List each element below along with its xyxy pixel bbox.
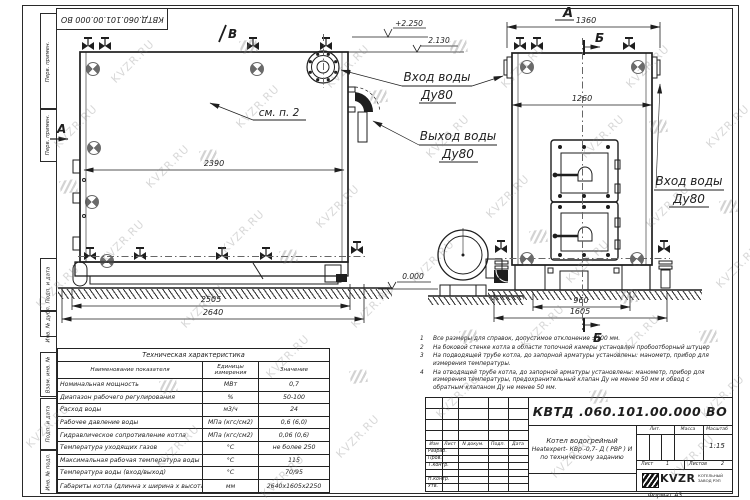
table-row: Температура воды (вход/выход)°С70/95 <box>58 467 329 480</box>
inlet-top-dn: Ду80 <box>420 88 453 102</box>
table-row: Габариты котла (длинна х ширина х высота… <box>58 480 329 493</box>
col-header-value: Значение <box>259 362 329 378</box>
cell-name: Максимальная рабочая температура воды <box>58 455 203 467</box>
cell-value: 24 <box>259 404 329 416</box>
center-mark-icon <box>85 195 99 209</box>
sheets-label: Листов <box>689 462 707 467</box>
note-item: 1Все размеры для справок, допустимое отк… <box>420 336 720 344</box>
cell-name: Температура воды (вход/выход) <box>58 467 203 479</box>
cell-value: 0,06 (0,6) <box>259 429 329 441</box>
valve-icon <box>351 242 363 254</box>
view-label-a: А <box>562 6 573 21</box>
table-row: Номинальная мощностьМВт0,7 <box>58 379 329 392</box>
kvzr-company-name: КОТЕЛЬНЫЙ ЗАВОД РЭП <box>698 474 723 483</box>
valve-icon <box>623 38 635 50</box>
col-izm: Изм <box>429 442 438 447</box>
row-nkontr: Н.контр. <box>428 477 449 482</box>
section-marker-a: А <box>56 122 66 136</box>
dimension-lines <box>62 22 667 323</box>
center-mark-icon <box>630 252 644 266</box>
kvzr-logo-text: KVZR <box>660 472 695 485</box>
dim-side-full: 2640 <box>203 308 223 317</box>
cell-units: МВт <box>203 379 259 391</box>
elevation-inlet: 2.130 <box>428 36 450 45</box>
cell-units: °С <box>203 455 259 467</box>
center-mark-icon <box>520 60 534 74</box>
cell-units: мм <box>203 480 259 493</box>
valve-icon <box>82 38 94 50</box>
col-header-name: Наименование показателя <box>58 362 203 378</box>
drawing-sheet: Перв. примен. Перв. примен. Подп. и дата… <box>0 0 750 500</box>
cell-units: МПа (кгс/см2) <box>203 417 259 429</box>
cell-value: 50-100 <box>259 392 329 404</box>
center-mark-icon <box>631 60 645 74</box>
boiler-side-view <box>73 52 380 286</box>
col-podp: Подп. <box>491 442 505 447</box>
table-row: Максимальная рабочая температура воды°С1… <box>58 455 329 468</box>
cell-units: °С <box>203 442 259 454</box>
table-header-row: Наименование показателя Единицы измерени… <box>58 362 329 379</box>
cell-name: Номинальная мощность <box>58 379 203 391</box>
table-row: Диапазон рабочего регулирования%50-100 <box>58 392 329 405</box>
note-text: На боковой стенке котла в области топочн… <box>433 345 720 353</box>
sheet-label: Лист <box>641 462 653 467</box>
table-row: Расход водым3/ч24 <box>58 404 329 417</box>
kvzr-logo-icon <box>642 473 659 488</box>
inlet-side-label: Вход воды <box>656 174 723 188</box>
valve-icon <box>514 38 526 50</box>
callout-labels: см. п. 2 Вход воды Ду80 Выход воды Ду80 … <box>210 70 724 207</box>
cell-units: м3/ч <box>203 404 259 416</box>
dim-side-inner: 2390 <box>204 159 224 168</box>
center-mark-icon <box>86 62 100 76</box>
format-label: Формат А3 <box>648 492 682 499</box>
outlet-label: Выход воды <box>420 129 496 143</box>
valve-icon <box>320 38 332 50</box>
dim-front-width: 1360 <box>576 16 596 25</box>
section-marker-v: В <box>228 27 237 41</box>
valve-icon <box>658 241 670 253</box>
cell-value: не более 250 <box>259 442 329 454</box>
dimension-labels: 2390 2505 2640 1360 1260 960 1605 <box>201 16 596 317</box>
cell-units: МПа (кгс/см2) <box>203 429 259 441</box>
col-list: Лист <box>444 442 456 447</box>
note-number: 3 <box>420 353 433 368</box>
cell-units: % <box>203 392 259 404</box>
scale-value: 1:15 <box>709 442 725 450</box>
centerline-front <box>582 38 583 330</box>
cell-name: Гидравлическое сопротивление котла <box>58 429 203 441</box>
title-block: КВТД .060.101.00.000 ВО Изм Лист N докум… <box>425 397 733 492</box>
note-item: 2На боковой стенке котла в области топоч… <box>420 345 720 353</box>
col-data: Дата <box>512 442 524 447</box>
cell-units: °С <box>203 467 259 479</box>
valve-icon <box>99 38 111 50</box>
cell-value: 0,7 <box>259 379 329 391</box>
center-mark-icon <box>250 62 264 76</box>
doc-number-main: КВТД .060.101.00.000 ВО <box>528 398 732 425</box>
table-row: Рабочее давление водыМПа (кгс/см2)0,6 (6… <box>58 417 329 430</box>
sheet-value: 1 <box>666 462 669 467</box>
sheets-value: 2 <box>721 462 724 467</box>
note-item: 4На отводящей трубе котла, до запорной а… <box>420 370 720 393</box>
cell-name: Расход воды <box>58 404 203 416</box>
note-text: На подводящей трубе котла, до запорной а… <box>433 353 720 368</box>
centerline-side-valves <box>78 256 366 257</box>
cell-value: 2640х1605х2250 <box>259 480 329 493</box>
company-line-2: ЗАВОД РЭП <box>698 479 723 484</box>
cell-name: Рабочее давление воды <box>58 417 203 429</box>
lit-label: Лит. <box>650 427 661 432</box>
row-tkontr: Т.контр. <box>428 463 449 468</box>
note-number: 1 <box>420 336 433 344</box>
dim-front-full: 1605 <box>570 307 590 316</box>
elevation-zero: 0.000 <box>402 272 424 281</box>
elevation-top: +2.250 <box>395 19 423 28</box>
row-razrab: Разраб. <box>428 449 447 454</box>
row-utv: Утв. <box>428 484 438 489</box>
notes-list: 1Все размеры для справок, допустимое отк… <box>420 336 720 393</box>
cell-name: Температура уходящих газов <box>58 442 203 454</box>
valve-icon <box>134 248 146 260</box>
note-text: На отводящей трубе котла, до запорной ар… <box>433 370 720 393</box>
centerline-flange <box>323 34 324 88</box>
note-number: 2 <box>420 345 433 353</box>
table-title: Техническая характеристика <box>58 349 329 362</box>
outlet-dn: Ду80 <box>441 147 474 161</box>
valve-icon <box>531 38 543 50</box>
col-header-units: Единицы измерения <box>203 362 259 378</box>
product-title: Котел водогрейный Heatexpert- КВр -0,7- … <box>528 425 636 473</box>
cell-name: Габариты котла (длинна х ширина х высота… <box>58 480 203 493</box>
table-row: Гидравлическое сопротивление котлаМПа (к… <box>58 429 329 442</box>
valve-icon <box>260 248 272 260</box>
center-mark-icon <box>520 252 534 266</box>
mass-label: Масса <box>681 427 696 432</box>
table-row: Температура уходящих газов°Сне более 250 <box>58 442 329 455</box>
row-prov: Пров. <box>428 456 442 461</box>
ground-hatch-fan <box>428 297 524 305</box>
valve-icon <box>247 38 259 50</box>
inlet-side-dn: Ду80 <box>672 192 705 206</box>
product-line-3: по техническому заданию <box>540 454 623 461</box>
section-marker-b-top: Б <box>595 31 604 45</box>
product-line-2: Heatexpert- КВр -0,7- Д ( РВР ) И <box>532 446 633 453</box>
inlet-top-label: Вход воды <box>404 70 471 84</box>
note-number: 4 <box>420 370 433 393</box>
col-ndoc: N докум. <box>462 442 483 447</box>
product-line-1: Котел водогрейный <box>546 437 617 445</box>
valve-icon <box>495 241 507 253</box>
see-note-label: см. п. 2 <box>259 107 300 119</box>
tech-characteristics-table: Техническая характеристика Наименование … <box>57 348 330 493</box>
scale-label: Масштаб <box>706 427 728 432</box>
cell-value: 0,6 (6,0) <box>259 417 329 429</box>
cell-name: Диапазон рабочего регулирования <box>58 392 203 404</box>
ground-hatch-side <box>58 289 392 299</box>
center-mark-icon <box>87 141 101 155</box>
note-item: 3На подводящей трубе котла, до запорной … <box>420 353 720 368</box>
note-text: Все размеры для справок, допустимое откл… <box>433 336 720 344</box>
cell-value: 70/95 <box>259 467 329 479</box>
centerline-front-pipes <box>495 258 670 259</box>
cell-value: 115 <box>259 455 329 467</box>
blower-fan <box>438 228 502 296</box>
valve-icon <box>216 248 228 260</box>
